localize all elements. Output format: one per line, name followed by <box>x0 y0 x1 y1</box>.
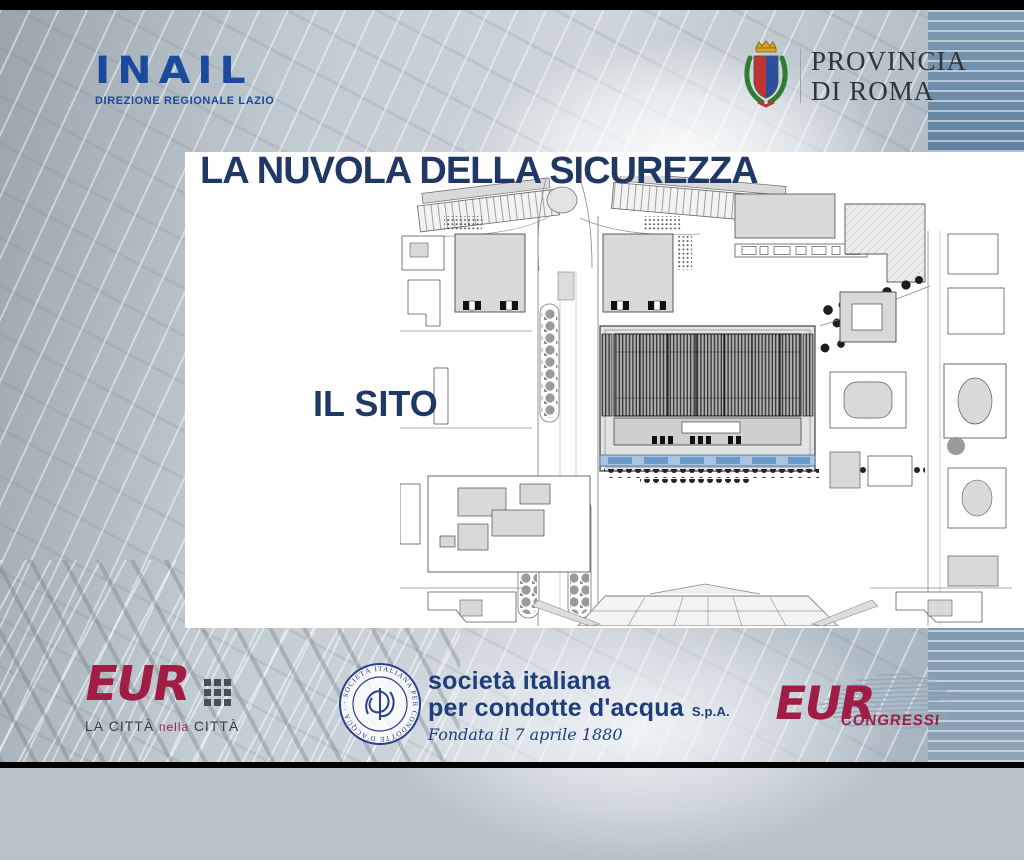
inail-subtitle: DIREZIONE REGIONALE LAZIO <box>95 95 274 107</box>
provincia-name-line1: PROVINCIA <box>811 46 967 76</box>
slide-title: LA NUVOLA DELLA SICUREZZA <box>200 150 758 193</box>
tagline-part: LA <box>85 718 104 734</box>
provincia-di-roma-logo: PROVINCIA DI ROMA <box>740 40 967 112</box>
letterbox-bar-bottom <box>0 762 1024 768</box>
provincia-name-line2: DI ROMA <box>811 76 967 106</box>
letterbox-bar-top <box>0 0 1024 10</box>
condotte-logotype: società italiana per condotte d'acquaS.p… <box>428 668 730 744</box>
eur-wordmark: EUR <box>81 660 192 708</box>
condotte-spa: S.p.A. <box>692 704 730 719</box>
tagline-part: CITTÀ <box>109 718 154 734</box>
eur-city-logo: EUR LA CITTÀ nella CITTÀ <box>85 660 255 734</box>
eur-tagline: LA CITTÀ nella CITTÀ <box>85 718 255 734</box>
eur-congressi-label: CONGRESSI <box>840 712 941 729</box>
site-plan-drawing <box>400 176 1012 626</box>
condotte-name-line2: per condotte d'acquaS.p.A. <box>428 695 730 722</box>
inail-logo: INAIL DIREZIONE REGIONALE LAZIO <box>95 50 274 107</box>
provincia-name: PROVINCIA DI ROMA <box>811 46 967 106</box>
tagline-part: nella <box>159 720 189 734</box>
condotte-name-line2-text: per condotte d'acqua <box>428 694 684 722</box>
provincia-crest-icon <box>740 40 792 112</box>
section-label: IL SITO <box>313 383 438 425</box>
site-plan-map <box>400 176 1012 626</box>
tagline-part: CITTÀ <box>194 718 239 734</box>
condotte-seal-icon: · SOCIETÀ ITALIANA PER CONDOTTE D'ACQUA … <box>338 662 422 751</box>
eur-dots-icon <box>204 679 231 706</box>
condotte-founded: Fondata il 7 aprile 1880 <box>428 725 730 744</box>
inail-wordmark: INAIL <box>95 52 274 90</box>
eur-congressi-logo: EUR CONGRESSI <box>775 672 955 752</box>
condotte-name-line1: società italiana <box>428 668 730 695</box>
provincia-separator <box>800 49 801 103</box>
